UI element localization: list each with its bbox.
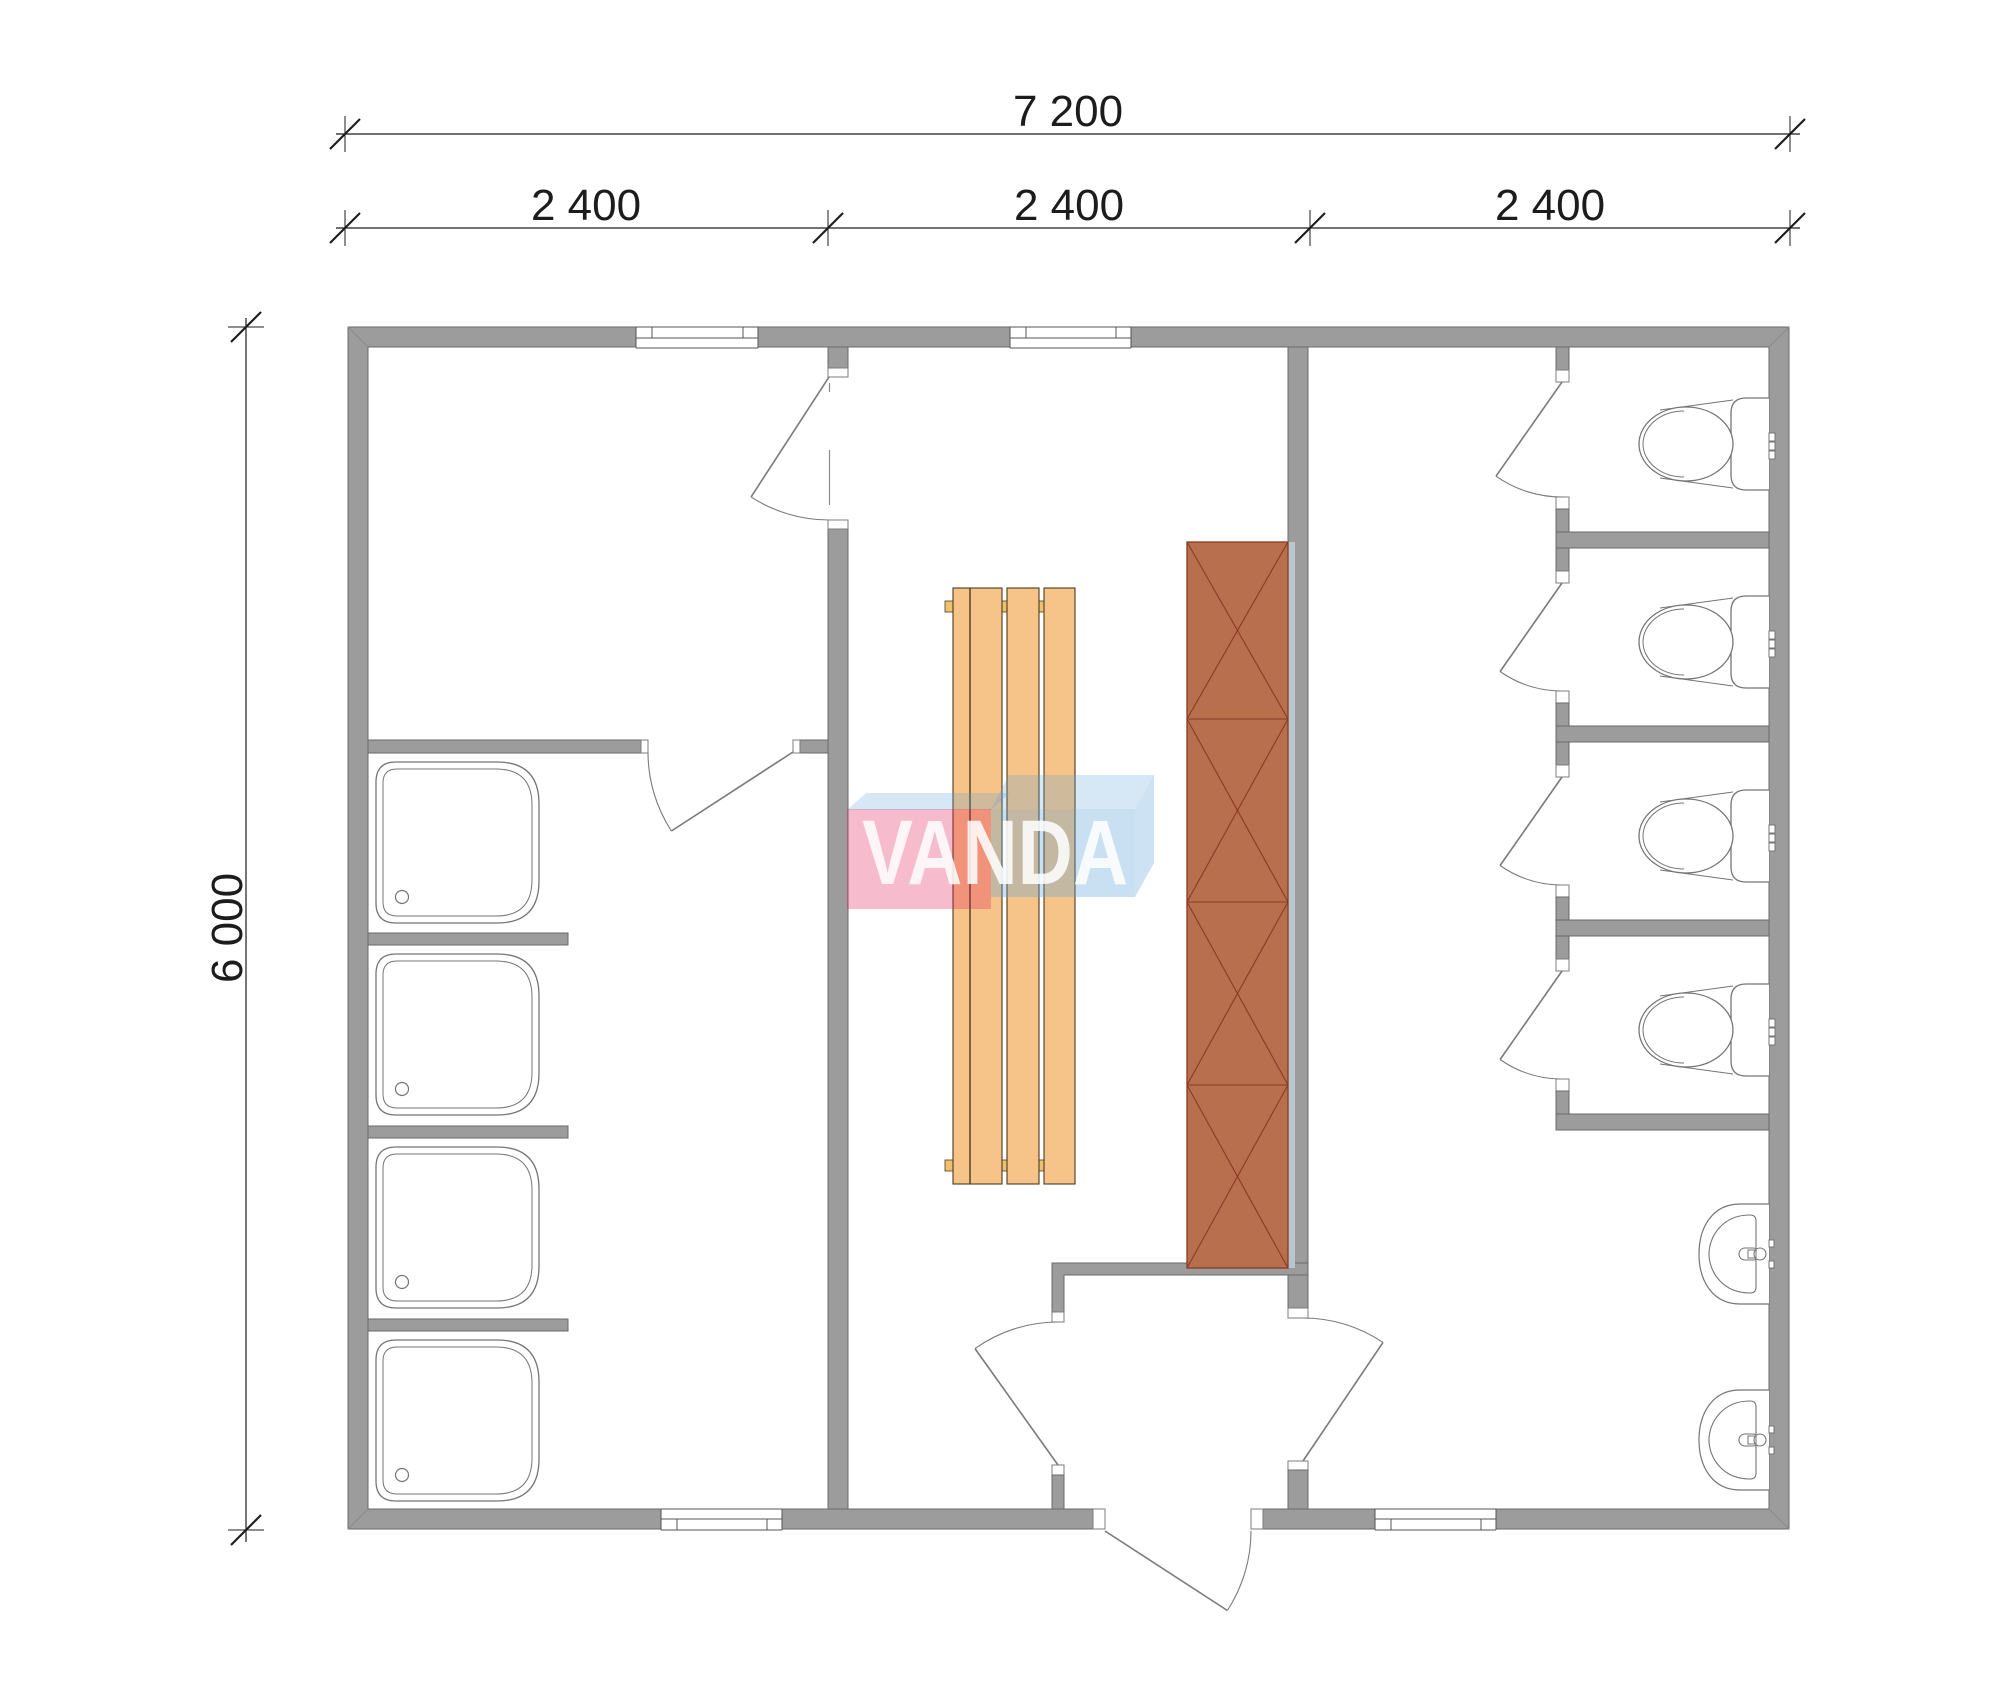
svg-text:VANDA: VANDA [862, 802, 1128, 904]
svg-text:6 000: 6 000 [203, 873, 252, 983]
svg-text:2 400: 2 400 [531, 181, 641, 230]
svg-text:2 400: 2 400 [1495, 181, 1605, 230]
svg-text:2 400: 2 400 [1014, 181, 1124, 230]
svg-text:7 200: 7 200 [1013, 87, 1123, 136]
